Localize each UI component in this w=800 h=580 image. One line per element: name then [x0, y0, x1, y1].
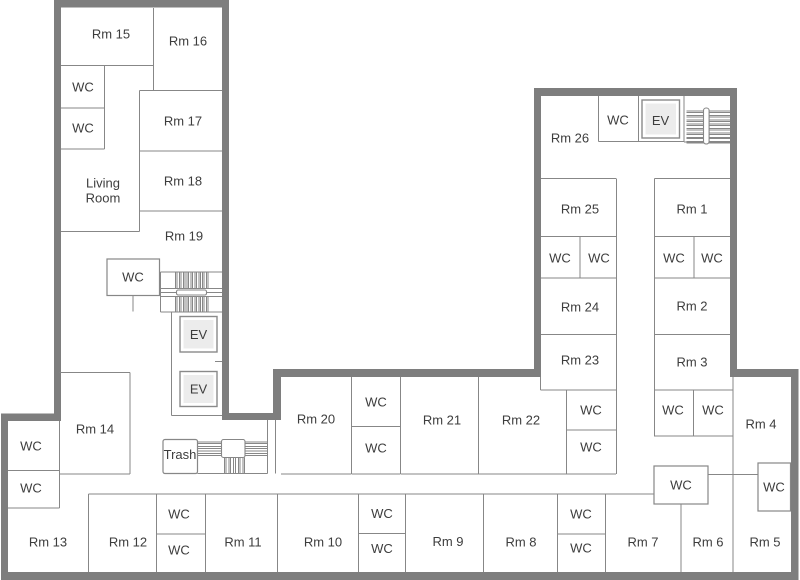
svg-text:WC: WC	[371, 541, 393, 556]
svg-text:WC: WC	[20, 439, 42, 454]
svg-text:Rm 4: Rm 4	[745, 417, 776, 432]
svg-text:Rm 6: Rm 6	[692, 535, 723, 550]
svg-text:Rm 18: Rm 18	[164, 174, 202, 189]
svg-text:Rm 14: Rm 14	[76, 422, 114, 437]
svg-text:Living: Living	[86, 176, 120, 191]
svg-text:WC: WC	[365, 395, 387, 410]
svg-text:Rm 9: Rm 9	[432, 534, 463, 549]
svg-text:WC: WC	[701, 251, 723, 266]
svg-text:WC: WC	[662, 403, 684, 418]
svg-text:WC: WC	[580, 403, 602, 418]
svg-text:Room: Room	[86, 191, 121, 206]
svg-text:Rm 8: Rm 8	[505, 535, 536, 550]
svg-text:WC: WC	[122, 270, 144, 285]
svg-text:Rm 11: Rm 11	[224, 535, 261, 550]
svg-text:WC: WC	[580, 440, 602, 455]
svg-text:WC: WC	[670, 478, 692, 493]
svg-text:Rm 15: Rm 15	[92, 27, 130, 42]
svg-text:Rm 7: Rm 7	[627, 535, 658, 550]
svg-text:Rm 1: Rm 1	[676, 202, 707, 217]
svg-text:Rm 13: Rm 13	[29, 535, 67, 550]
svg-text:WC: WC	[702, 403, 724, 418]
svg-text:WC: WC	[570, 541, 592, 556]
svg-text:Rm 2: Rm 2	[676, 299, 707, 314]
svg-text:Rm 24: Rm 24	[561, 300, 599, 315]
svg-text:Rm 16: Rm 16	[169, 34, 207, 49]
svg-text:Rm 5: Rm 5	[749, 535, 780, 550]
svg-text:Rm 22: Rm 22	[502, 413, 540, 428]
svg-text:WC: WC	[72, 121, 94, 136]
svg-text:Rm 3: Rm 3	[676, 355, 707, 370]
svg-text:Rm 19: Rm 19	[165, 229, 203, 244]
svg-text:WC: WC	[72, 80, 94, 95]
svg-text:Rm 17: Rm 17	[164, 114, 202, 129]
svg-text:Trash: Trash	[164, 447, 197, 462]
svg-text:Rm 25: Rm 25	[561, 202, 599, 217]
svg-text:Rm 10: Rm 10	[304, 535, 342, 550]
svg-text:WC: WC	[570, 507, 592, 522]
svg-text:WC: WC	[663, 251, 685, 266]
svg-text:WC: WC	[549, 251, 571, 266]
svg-text:EV: EV	[190, 327, 208, 342]
svg-text:WC: WC	[588, 251, 610, 266]
svg-text:WC: WC	[763, 480, 785, 495]
svg-text:WC: WC	[607, 113, 629, 128]
svg-text:Rm 20: Rm 20	[297, 412, 335, 427]
svg-text:WC: WC	[168, 507, 190, 522]
svg-text:Rm 21: Rm 21	[423, 413, 461, 428]
svg-text:WC: WC	[20, 481, 42, 496]
svg-text:EV: EV	[190, 382, 208, 397]
svg-text:Rm 26: Rm 26	[551, 131, 589, 146]
svg-text:Rm 12: Rm 12	[109, 535, 147, 550]
svg-text:WC: WC	[365, 441, 387, 456]
svg-text:EV: EV	[652, 113, 670, 128]
svg-text:Rm 23: Rm 23	[561, 353, 599, 368]
svg-text:WC: WC	[371, 506, 393, 521]
svg-text:WC: WC	[168, 543, 190, 558]
